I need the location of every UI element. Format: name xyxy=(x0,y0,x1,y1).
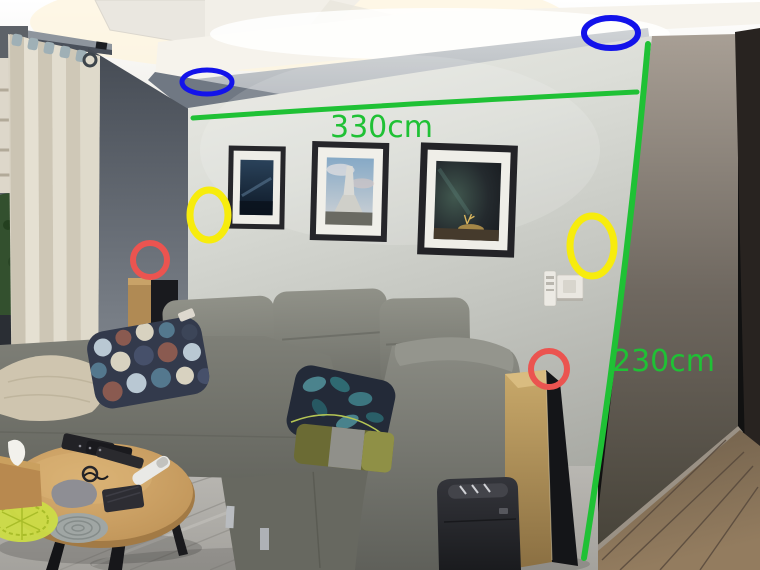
width-measurement-label: 330cm xyxy=(330,110,433,145)
height-measurement-label: 230cm xyxy=(612,344,715,379)
picture-frame-right xyxy=(417,142,518,257)
picture-frame-left xyxy=(227,146,285,230)
black-appliance xyxy=(437,477,521,570)
scene-photo: 330cm 230cm xyxy=(0,0,760,570)
annotated-living-room-photo: 330cm 230cm xyxy=(0,0,760,570)
light-switch xyxy=(544,271,583,306)
gray-cloth xyxy=(51,479,97,508)
sofa-foot xyxy=(225,506,234,528)
picture-frame-center xyxy=(310,141,390,242)
sofa-foot xyxy=(260,528,269,550)
